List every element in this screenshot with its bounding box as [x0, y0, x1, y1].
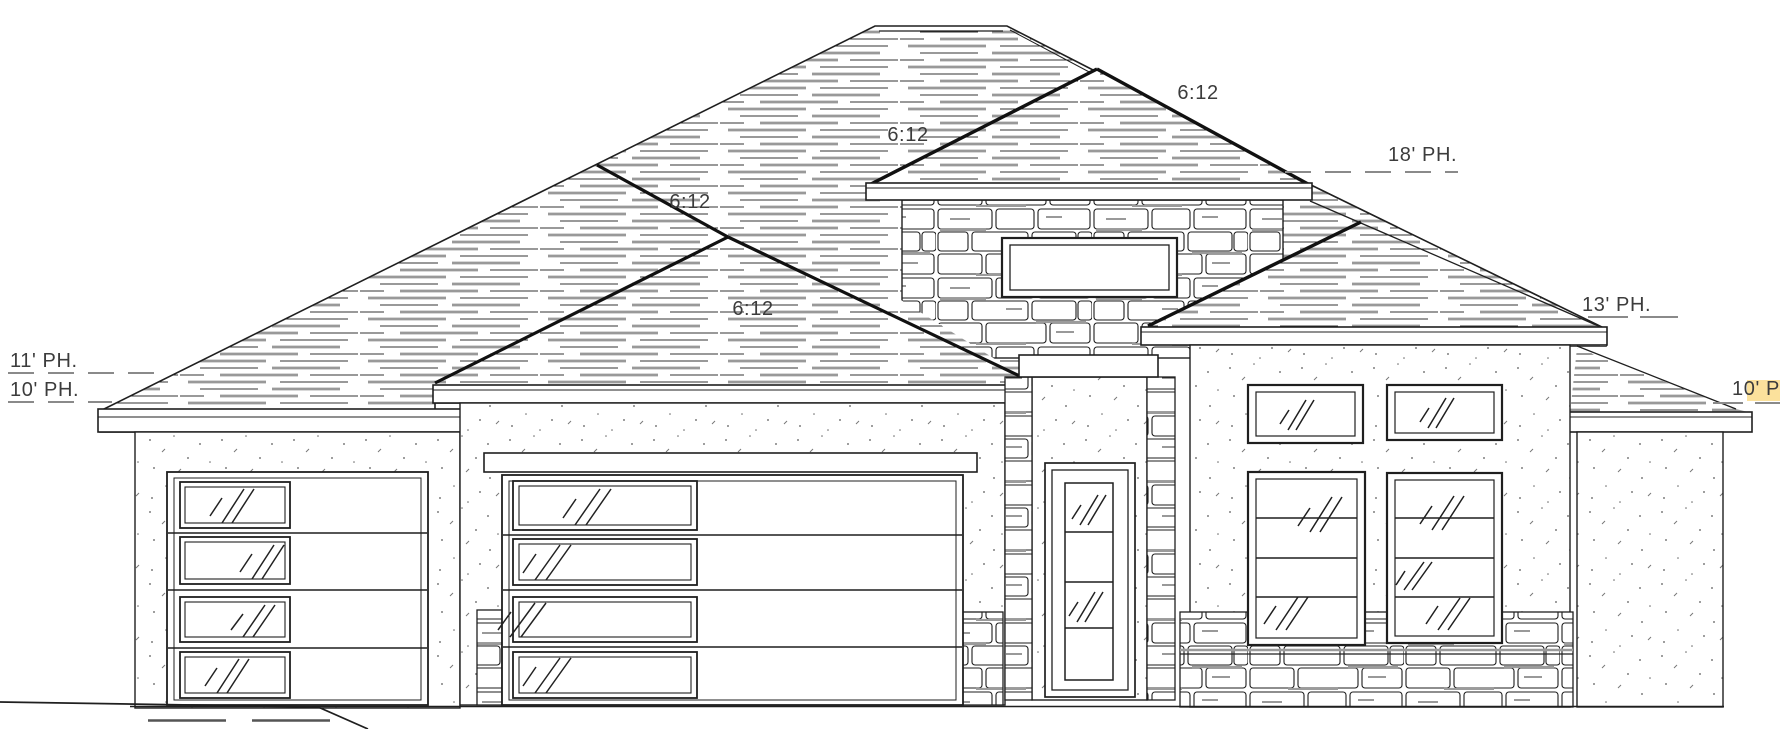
tower-fascia: [866, 183, 1312, 200]
label-pitch-upper-right: 6:12: [1177, 82, 1218, 105]
window-tall-right: [1387, 473, 1502, 643]
far-right-wall: [1577, 432, 1723, 707]
fascia-left-wing: [98, 409, 462, 432]
garage-door-left: [167, 472, 428, 705]
label-pitch-garage-hip: 6:12: [732, 298, 773, 321]
right-wing-stone-wainscot: [1180, 612, 1573, 707]
label-plate-height-18: 18' PH.: [1388, 144, 1457, 167]
elevation-sheet: 6:12 6:12 6:12 6:12 18' PH. 13' PH. 11' …: [0, 0, 1780, 729]
label-pitch-tower-left: 6:12: [887, 124, 928, 147]
fascia-right-wing: [1141, 327, 1607, 345]
window-small-right: [1387, 385, 1502, 440]
label-plate-height-11: 11' PH.: [10, 350, 78, 373]
garage-stone-wainscot-right: [960, 612, 1003, 705]
garage-door-main: [498, 475, 963, 705]
entry-stone-pier-right: [1147, 377, 1175, 700]
fascia-main-garage: [433, 385, 1032, 403]
label-plate-height-13: 13' PH.: [1582, 294, 1651, 317]
window-tall-left: [1248, 472, 1365, 645]
entry-stone-pier-left: [1005, 377, 1032, 700]
entry-header: [1019, 355, 1158, 377]
garage-door-header: [484, 453, 977, 472]
elevation-drawing: [0, 0, 1780, 729]
label-pitch-main-left-hip: 6:12: [669, 191, 710, 214]
entry-door: [1045, 463, 1135, 697]
window-small-left: [1248, 385, 1363, 443]
label-plate-height-10-right: 10' PH: [1732, 378, 1780, 401]
garage-stone-wainscot-left: [477, 610, 502, 705]
label-plate-height-10-left: 10' PH.: [10, 379, 79, 402]
far-right-fascia: [1568, 412, 1752, 432]
transom-window: [1002, 238, 1177, 297]
far-right-roof: [1568, 346, 1752, 432]
